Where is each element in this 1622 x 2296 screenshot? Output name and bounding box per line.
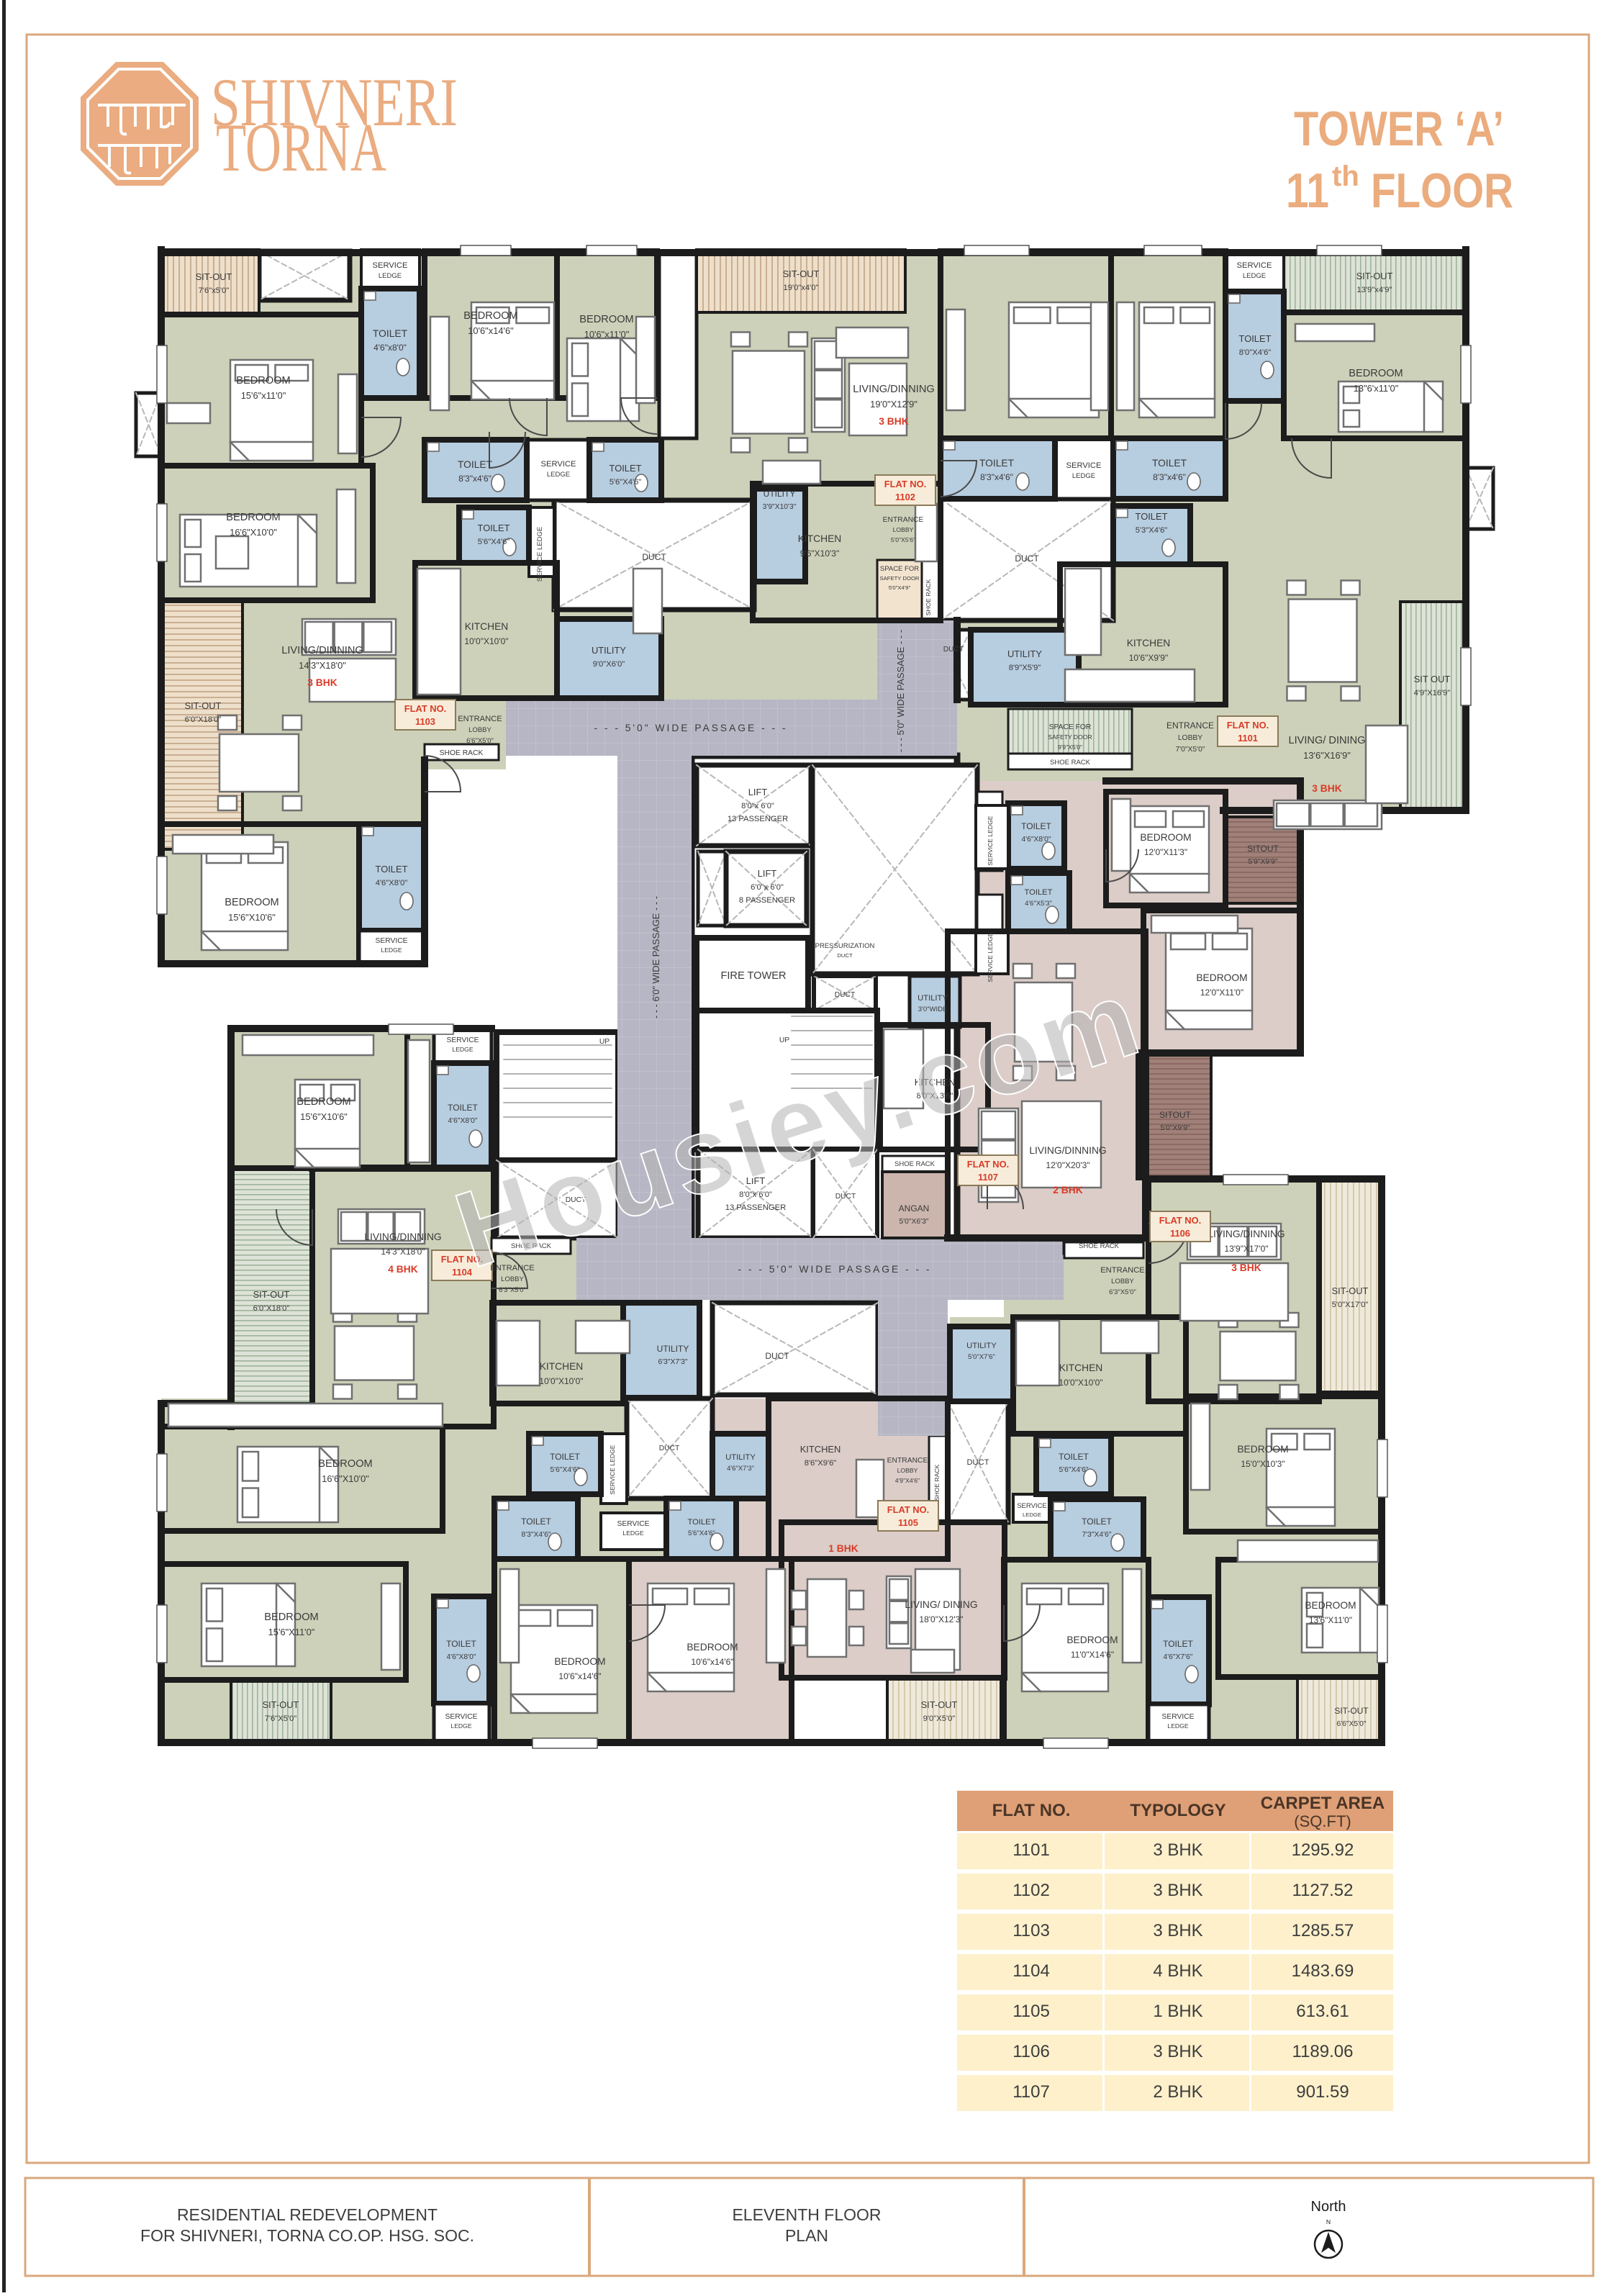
svg-text:SAFETY DOOR: SAFETY DOOR — [880, 575, 920, 582]
svg-text:8'3"x4'6": 8'3"x4'6" — [458, 474, 491, 484]
svg-text:LOBBY: LOBBY — [1111, 1278, 1134, 1285]
svg-text:15'0"X10'3": 15'0"X10'3" — [1241, 1459, 1285, 1469]
svg-text:8'3"X4'6": 8'3"X4'6" — [521, 1531, 551, 1539]
svg-text:8'9"X5'9": 8'9"X5'9" — [1009, 664, 1041, 672]
svg-text:TOILET: TOILET — [1082, 1517, 1112, 1527]
svg-text:4'6"X7'6": 4'6"X7'6" — [1163, 1653, 1192, 1661]
svg-text:7'0"X5'0": 7'0"X5'0" — [1175, 746, 1205, 754]
svg-text:1102: 1102 — [895, 492, 915, 502]
svg-text:4'6"X8'0": 4'6"X8'0" — [446, 1653, 476, 1661]
svg-text:1103: 1103 — [415, 716, 435, 727]
svg-text:CARPET AREA: CARPET AREA — [1261, 1794, 1385, 1813]
svg-text:North: North — [1311, 2199, 1346, 2215]
svg-text:ENTRANCE: ENTRANCE — [1166, 720, 1214, 731]
svg-text:5'0"X17'0": 5'0"X17'0" — [1332, 1301, 1369, 1309]
svg-text:FLAT NO.: FLAT NO. — [887, 1504, 929, 1515]
svg-text:KITCHEN: KITCHEN — [465, 621, 509, 632]
svg-text:7'3"X4'6": 7'3"X4'6" — [1082, 1531, 1111, 1539]
svg-text:SHOE RACK: SHOE RACK — [440, 749, 484, 757]
svg-text:8'0"X4'6": 8'0"X4'6" — [1239, 348, 1272, 357]
svg-text:DUCT: DUCT — [966, 1458, 989, 1467]
svg-text:BEDROOM: BEDROOM — [1066, 1635, 1118, 1645]
svg-text:5'0"X6'3": 5'0"X6'3" — [899, 1218, 928, 1226]
svg-text:UTILITY: UTILITY — [592, 645, 626, 656]
svg-text:TOILET: TOILET — [448, 1103, 478, 1113]
svg-text:LIVING/DINNING: LIVING/DINNING — [281, 645, 363, 656]
svg-text:13 PASSENGER: 13 PASSENGER — [728, 815, 788, 823]
svg-text:6'0"x 6'0": 6'0"x 6'0" — [751, 883, 784, 892]
svg-text:4'9"X16'9": 4'9"X16'9" — [1414, 689, 1451, 697]
svg-text:BEDROOM: BEDROOM — [463, 310, 517, 322]
svg-text:FLAT NO.: FLAT NO. — [967, 1159, 1009, 1170]
svg-text:5'3"X4'6": 5'3"X4'6" — [1136, 526, 1168, 535]
svg-text:LIVING/DINNING: LIVING/DINNING — [853, 384, 935, 395]
svg-text:ENTRANCE: ENTRANCE — [1100, 1266, 1145, 1275]
svg-text:KITCHEN: KITCHEN — [798, 533, 842, 544]
svg-text:8'0"x 6'0": 8'0"x 6'0" — [741, 802, 774, 810]
svg-text:SIT OUT: SIT OUT — [1414, 674, 1451, 684]
svg-text:4'6"X7'3": 4'6"X7'3" — [727, 1465, 754, 1473]
svg-text:SITOUT: SITOUT — [1159, 1110, 1191, 1120]
svg-text:SERVICE: SERVICE — [1161, 1713, 1194, 1721]
svg-text:SPACE FOR: SPACE FOR — [880, 565, 919, 573]
svg-text:ELEVENTH FLOOR: ELEVENTH FLOOR — [732, 2205, 881, 2224]
svg-text:ENTRANCE: ENTRANCE — [458, 715, 502, 723]
svg-text:FLAT NO.: FLAT NO. — [884, 479, 926, 489]
svg-text:SIT-OUT: SIT-OUT — [253, 1289, 290, 1300]
svg-text:LEDGE: LEDGE — [450, 1722, 471, 1730]
svg-text:SERVICE LEDGE: SERVICE LEDGE — [987, 815, 994, 865]
svg-text:SAFETY DOOR: SAFETY DOOR — [1048, 733, 1092, 741]
svg-text:16'6"X10'0": 16'6"X10'0" — [230, 527, 277, 538]
svg-text:19'0"x4'0": 19'0"x4'0" — [784, 284, 819, 292]
svg-text:DUCT: DUCT — [659, 1445, 680, 1452]
svg-text:LIVING/ DINING: LIVING/ DINING — [1288, 735, 1365, 746]
svg-text:3 BHK: 3 BHK — [1153, 2042, 1202, 2061]
svg-text:1127.52: 1127.52 — [1292, 1881, 1354, 1900]
svg-text:5'9"X9'9": 5'9"X9'9" — [1248, 858, 1277, 866]
svg-text:SIT-OUT: SIT-OUT — [1334, 1706, 1369, 1716]
svg-text:LEDGE: LEDGE — [1167, 1722, 1188, 1730]
svg-text:TOWER ‘A’: TOWER ‘A’ — [1294, 101, 1504, 156]
svg-text:1189.06: 1189.06 — [1292, 2042, 1354, 2061]
svg-text:SERVICE: SERVICE — [373, 261, 408, 270]
svg-text:LEDGE: LEDGE — [547, 471, 570, 479]
svg-text:LOBBY: LOBBY — [468, 726, 491, 734]
svg-text:BEDROOM: BEDROOM — [318, 1458, 372, 1470]
svg-text:DUCT: DUCT — [642, 552, 666, 562]
svg-text:SIT-OUT: SIT-OUT — [1332, 1285, 1369, 1296]
svg-text:5'6"X4'6": 5'6"X4'6" — [610, 478, 642, 487]
svg-text:TOILET: TOILET — [1163, 1639, 1193, 1649]
svg-text:LEDGE: LEDGE — [379, 272, 402, 280]
svg-text:PLAN: PLAN — [785, 2226, 828, 2245]
svg-text:SERVICE: SERVICE — [375, 937, 407, 945]
svg-text:SHOE RACK: SHOE RACK — [925, 579, 932, 615]
svg-text:4'6"X8'0": 4'6"X8'0" — [376, 879, 408, 887]
svg-text:SPACE FOR: SPACE FOR — [1049, 723, 1092, 731]
svg-text:10'0"X10'0": 10'0"X10'0" — [464, 636, 508, 646]
svg-text:TOILET: TOILET — [610, 463, 642, 474]
svg-text:DUCT: DUCT — [1015, 553, 1039, 564]
svg-text:RESIDENTIAL REDEVELOPMENT: RESIDENTIAL REDEVELOPMENT — [177, 2205, 438, 2224]
svg-text:10'6"X9'9": 10'6"X9'9" — [1129, 653, 1168, 663]
svg-text:FLAT NO.: FLAT NO. — [1159, 1215, 1201, 1226]
svg-text:15'6"X11'0": 15'6"X11'0" — [268, 1627, 315, 1637]
svg-text:1 BHK: 1 BHK — [828, 1543, 858, 1554]
svg-text:613.61: 613.61 — [1296, 2002, 1349, 2021]
svg-text:15'6"X10'6": 15'6"X10'6" — [300, 1111, 348, 1122]
svg-text:SERVICE: SERVICE — [1017, 1502, 1047, 1510]
svg-text:SHOE RACK: SHOE RACK — [894, 1160, 935, 1168]
svg-text:- - - 5'0" WIDE PASSAGE - -: - - - 5'0" WIDE PASSAGE - - - — [594, 723, 787, 733]
svg-text:8 PASSENGER: 8 PASSENGER — [739, 896, 795, 905]
svg-text:13'9"x4'9": 13'9"x4'9" — [1357, 286, 1392, 294]
svg-text:UTILITY: UTILITY — [918, 994, 948, 1003]
svg-text:9'9"X5'0": 9'9"X5'0" — [1058, 744, 1082, 751]
svg-text:SERVICE: SERVICE — [617, 1520, 649, 1528]
svg-text:15'6"X10'6": 15'6"X10'6" — [228, 912, 276, 923]
svg-text:3 BHK: 3 BHK — [1153, 1881, 1202, 1900]
svg-text:(SQ.FT): (SQ.FT) — [1294, 1812, 1351, 1830]
svg-text:8'3"x4'6": 8'3"x4'6" — [980, 472, 1013, 482]
svg-text:1295.92: 1295.92 — [1292, 1840, 1354, 1860]
svg-text:TOILET: TOILET — [376, 864, 408, 874]
svg-text:BEDROOM: BEDROOM — [1349, 368, 1403, 379]
svg-text:1104: 1104 — [452, 1267, 473, 1278]
svg-text:1107: 1107 — [978, 1172, 998, 1183]
svg-text:10'0"X10'0": 10'0"X10'0" — [1059, 1378, 1102, 1388]
svg-text:5'0"X4'9": 5'0"X4'9" — [889, 584, 911, 591]
svg-text:TOILET: TOILET — [458, 459, 493, 470]
svg-text:10'6"x14'6": 10'6"x14'6" — [691, 1657, 733, 1667]
svg-text:11: 11 — [1286, 163, 1329, 218]
svg-text:TYPOLOGY: TYPOLOGY — [1130, 1801, 1225, 1820]
svg-text:7'6"x5'0": 7'6"x5'0" — [199, 286, 230, 295]
svg-text:LEDGE: LEDGE — [1243, 272, 1266, 280]
svg-text:FLAT NO.: FLAT NO. — [992, 1801, 1071, 1820]
svg-text:SERVICE: SERVICE — [541, 460, 576, 469]
svg-text:6'6"X5'0": 6'6"X5'0" — [466, 737, 494, 745]
svg-text:10'6"x11'0": 10'6"x11'0" — [584, 329, 630, 340]
svg-text:TOILET: TOILET — [1136, 511, 1168, 522]
svg-text:2 BHK: 2 BHK — [1153, 2082, 1202, 2102]
svg-text:5'6"X4'6": 5'6"X4'6" — [688, 1529, 715, 1537]
svg-text:3'9"X10'3": 3'9"X10'3" — [763, 503, 797, 511]
svg-text:TOILET: TOILET — [550, 1452, 580, 1462]
svg-text:1 BHK: 1 BHK — [1153, 2002, 1202, 2021]
svg-text:KITCHEN: KITCHEN — [800, 1444, 841, 1455]
svg-text:BEDROOM: BEDROOM — [1237, 1444, 1288, 1455]
svg-text:LIVING/ DINING: LIVING/ DINING — [905, 1599, 977, 1610]
svg-text:LIFT: LIFT — [748, 787, 768, 797]
svg-text:13'6"X16'9": 13'6"X16'9" — [1303, 750, 1351, 761]
svg-text:3 BHK: 3 BHK — [879, 416, 908, 427]
svg-text:- - - 5'0" WIDE PASSAGE - - -: - - - 5'0" WIDE PASSAGE - - - — [895, 630, 906, 752]
svg-text:11'0"X14'6": 11'0"X14'6" — [1071, 1650, 1114, 1660]
svg-text:LIVING/DINNING: LIVING/DINNING — [1029, 1145, 1106, 1156]
svg-text:5'0"X9'9": 5'0"X9'9" — [1160, 1124, 1190, 1132]
svg-text:UTILITY: UTILITY — [657, 1344, 689, 1354]
svg-text:5'6"X4'6": 5'6"X4'6" — [550, 1466, 579, 1474]
svg-text:4'6"X5'3": 4'6"X5'3" — [1025, 900, 1052, 908]
svg-text:UP: UP — [599, 1038, 610, 1046]
svg-text:1101: 1101 — [1238, 733, 1258, 744]
svg-text:1107: 1107 — [1012, 2082, 1050, 2102]
svg-text:SIT-OUT: SIT-OUT — [196, 271, 232, 282]
svg-text:th: th — [1332, 161, 1359, 192]
svg-text:BEDROOM: BEDROOM — [1140, 832, 1191, 843]
svg-text:SERVICE LEDGE: SERVICE LEDGE — [536, 527, 544, 582]
svg-text:4'6"X8'0": 4'6"X8'0" — [1021, 836, 1051, 844]
svg-text:FIRE TOWER: FIRE TOWER — [720, 970, 786, 982]
svg-text:14'3"X18'0": 14'3"X18'0" — [299, 660, 346, 671]
svg-text:4'6"X8'0": 4'6"X8'0" — [448, 1117, 477, 1125]
svg-text:4 BHK: 4 BHK — [388, 1264, 417, 1275]
svg-text:19'0"X12'9": 19'0"X12'9" — [870, 399, 918, 410]
svg-text:SERVICE LEDGE: SERVICE LEDGE — [987, 932, 994, 982]
svg-text:BEDROOM: BEDROOM — [579, 314, 633, 325]
svg-text:TORNA: TORNA — [216, 109, 386, 186]
svg-text:3 BHK: 3 BHK — [307, 677, 337, 688]
svg-text:3 BHK: 3 BHK — [1231, 1262, 1261, 1273]
svg-text:KITCHEN: KITCHEN — [540, 1361, 584, 1372]
svg-text:BEDROOM: BEDROOM — [554, 1656, 605, 1667]
svg-text:1106: 1106 — [1012, 2042, 1050, 2061]
svg-text:SIT-OUT: SIT-OUT — [921, 1699, 958, 1710]
svg-text:TOILET: TOILET — [521, 1517, 551, 1527]
svg-text:KITCHEN: KITCHEN — [1059, 1362, 1103, 1373]
svg-text:LIVING/DINNING: LIVING/DINNING — [1208, 1229, 1285, 1239]
svg-text:SHOE RACK: SHOE RACK — [1050, 759, 1091, 767]
svg-text:UTILITY: UTILITY — [1007, 648, 1042, 659]
svg-text:16'6"X10'0": 16'6"X10'0" — [322, 1473, 369, 1484]
svg-text:LEDGE: LEDGE — [381, 946, 402, 954]
svg-text:5'6"X4'6": 5'6"X4'6" — [1059, 1466, 1088, 1474]
svg-text:4'6"x8'0": 4'6"x8'0" — [373, 343, 407, 353]
svg-text:6'3"X7'3": 6'3"X7'3" — [658, 1358, 687, 1366]
svg-text:5'0"X5'6": 5'0"X5'6" — [891, 536, 915, 543]
svg-text:9'6"X10'3": 9'6"X10'3" — [800, 548, 839, 559]
svg-text:UTILITY: UTILITY — [966, 1342, 997, 1350]
svg-text:8'6"X9'6": 8'6"X9'6" — [805, 1459, 837, 1468]
svg-text:1103: 1103 — [1012, 1921, 1050, 1940]
svg-text:LOBBY: LOBBY — [893, 526, 914, 533]
svg-text:UTILITY: UTILITY — [725, 1453, 756, 1462]
svg-text:3 BHK: 3 BHK — [1312, 783, 1341, 794]
svg-text:BEDROOM: BEDROOM — [687, 1642, 738, 1653]
svg-text:3 BHK: 3 BHK — [1153, 1921, 1202, 1940]
svg-text:LIVING/DINNING: LIVING/DINNING — [364, 1231, 441, 1242]
svg-text:5'0"X7'6": 5'0"X7'6" — [968, 1353, 995, 1361]
svg-text:6'6"X5'0": 6'6"X5'0" — [1336, 1720, 1366, 1728]
svg-text:KITCHEN: KITCHEN — [1127, 638, 1171, 648]
svg-text:LEDGE: LEDGE — [452, 1046, 473, 1053]
svg-text:13'9"X17'0": 13'9"X17'0" — [1224, 1244, 1268, 1254]
svg-text:12'0"X11'0": 12'0"X11'0" — [1200, 987, 1243, 998]
svg-text:FOR SHIVNERI, TORNA CO.OP. HSG: FOR SHIVNERI, TORNA CO.OP. HSG. SOC. — [140, 2226, 474, 2245]
svg-text:14'3"X18'0": 14'3"X18'0" — [381, 1247, 425, 1257]
svg-text:6'0"X18'0": 6'0"X18'0" — [185, 715, 222, 724]
svg-text:- - - 6'0" WIDE PASSAGE - - -: - - - 6'0" WIDE PASSAGE - - - — [651, 896, 661, 1018]
svg-text:TOILET: TOILET — [1021, 821, 1051, 831]
svg-text:BEDROOM: BEDROOM — [1305, 1600, 1356, 1611]
svg-text:TOILET: TOILET — [373, 328, 408, 339]
svg-text:SERVICE: SERVICE — [1066, 461, 1102, 470]
svg-text:6'0"X18'0": 6'0"X18'0" — [253, 1304, 290, 1313]
svg-text:7'6"X5'0": 7'6"X5'0" — [265, 1714, 297, 1723]
svg-text:N: N — [1326, 2218, 1331, 2225]
svg-text:2 BHK: 2 BHK — [1053, 1185, 1082, 1196]
svg-text:TOILET: TOILET — [979, 458, 1015, 469]
svg-text:1106: 1106 — [1170, 1228, 1190, 1239]
svg-text:TOILET: TOILET — [688, 1518, 716, 1527]
svg-text:1102: 1102 — [1012, 1881, 1050, 1900]
svg-text:TOILET: TOILET — [1239, 333, 1272, 344]
svg-text:SERVICE: SERVICE — [445, 1713, 477, 1721]
svg-text:9'0"X5'0": 9'0"X5'0" — [923, 1714, 956, 1723]
svg-text:SHOE RACK: SHOE RACK — [1079, 1242, 1120, 1250]
svg-text:1101: 1101 — [1012, 1840, 1050, 1860]
svg-text:TOILET: TOILET — [478, 523, 510, 533]
svg-text:1105: 1105 — [898, 1517, 918, 1528]
svg-text:SIT-OUT: SIT-OUT — [263, 1699, 299, 1710]
svg-text:15'6"x11'0": 15'6"x11'0" — [241, 390, 286, 401]
svg-text:DUCT: DUCT — [943, 646, 964, 654]
svg-text:FLAT NO.: FLAT NO. — [404, 703, 446, 714]
svg-text:ENTRANCE: ENTRANCE — [887, 1457, 928, 1465]
svg-text:9'0"X6'0": 9'0"X6'0" — [593, 660, 625, 669]
svg-text:1285.57: 1285.57 — [1292, 1921, 1354, 1940]
svg-text:SIT-OUT: SIT-OUT — [1356, 271, 1393, 281]
svg-text:1483.69: 1483.69 — [1292, 1961, 1354, 1981]
svg-text:LEDGE: LEDGE — [1072, 472, 1095, 480]
svg-text:- - - 5'0" WIDE PASSAGE - -: - - - 5'0" WIDE PASSAGE - - - — [738, 1264, 931, 1275]
svg-text:5'6"X4'6": 5'6"X4'6" — [478, 538, 510, 546]
svg-text:FLAT NO.: FLAT NO. — [1227, 720, 1269, 731]
svg-text:3 BHK: 3 BHK — [1153, 1840, 1202, 1860]
svg-text:LOBBY: LOBBY — [897, 1467, 918, 1474]
svg-text:BEDROOM: BEDROOM — [1196, 972, 1247, 983]
svg-text:1104: 1104 — [1012, 1961, 1050, 1981]
svg-text:BEDROOM: BEDROOM — [226, 512, 280, 523]
svg-text:SERVICE LEDGE: SERVICE LEDGE — [609, 1445, 616, 1494]
svg-text:UTILITY: UTILITY — [764, 489, 796, 499]
svg-text:13'6"X11'0": 13'6"X11'0" — [1309, 1615, 1352, 1625]
svg-text:DUCT: DUCT — [837, 952, 853, 959]
svg-text:10'6"x14'6": 10'6"x14'6" — [468, 325, 514, 336]
svg-text:18'0"X12'3": 18'0"X12'3" — [919, 1614, 963, 1624]
svg-text:DUCT: DUCT — [835, 991, 856, 999]
svg-text:LEDGE: LEDGE — [1023, 1511, 1041, 1518]
svg-text:SIT-OUT: SIT-OUT — [185, 700, 222, 711]
svg-text:SIT-OUT: SIT-OUT — [783, 268, 820, 279]
svg-text:TOILET: TOILET — [1152, 458, 1187, 469]
svg-text:UP: UP — [779, 1036, 789, 1044]
svg-text:SITOUT: SITOUT — [1247, 844, 1279, 854]
svg-text:6'3"X5'0": 6'3"X5'0" — [499, 1286, 526, 1294]
svg-text:LEDGE: LEDGE — [622, 1529, 643, 1537]
svg-text:SERVICE: SERVICE — [1237, 261, 1272, 270]
svg-text:13"6'x11'0": 13"6'x11'0" — [1354, 383, 1399, 394]
svg-text:TOILET: TOILET — [1059, 1452, 1089, 1462]
svg-text:SERVICE: SERVICE — [446, 1036, 479, 1044]
svg-text:10'0"X10'0": 10'0"X10'0" — [539, 1376, 583, 1386]
svg-text:1105: 1105 — [1012, 2002, 1050, 2021]
svg-text:TOILET: TOILET — [1025, 888, 1053, 897]
svg-text:BEDROOM: BEDROOM — [264, 1612, 318, 1623]
svg-text:PRESSURIZATION: PRESSURIZATION — [815, 942, 875, 950]
svg-text:6'3"X5'0": 6'3"X5'0" — [1109, 1288, 1136, 1296]
svg-text:12'0"X20'3": 12'0"X20'3" — [1046, 1160, 1089, 1170]
svg-text:ENTRANCE: ENTRANCE — [883, 516, 924, 524]
svg-text:BEDROOM: BEDROOM — [296, 1096, 350, 1108]
svg-text:4'9"X4'6": 4'9"X4'6" — [895, 1477, 920, 1484]
svg-text:BEDROOM: BEDROOM — [225, 897, 278, 908]
svg-text:12'0"X11'3": 12'0"X11'3" — [1144, 847, 1187, 857]
svg-text:BEDROOM: BEDROOM — [236, 375, 290, 387]
svg-text:DUCT: DUCT — [765, 1351, 789, 1361]
svg-text:LIFT: LIFT — [758, 868, 777, 879]
svg-text:4 BHK: 4 BHK — [1153, 1961, 1202, 1981]
svg-text:ANGAN: ANGAN — [899, 1203, 930, 1213]
svg-text:10'6"x14'6": 10'6"x14'6" — [558, 1671, 601, 1681]
svg-text:SHOE RACK: SHOE RACK — [933, 1464, 941, 1501]
svg-text:DUCT: DUCT — [835, 1193, 856, 1201]
svg-text:8'3"x4'6": 8'3"x4'6" — [1153, 472, 1186, 482]
svg-text:FLOOR: FLOOR — [1371, 163, 1513, 218]
svg-text:901.59: 901.59 — [1296, 2082, 1349, 2102]
svg-text:LOBBY: LOBBY — [1178, 734, 1202, 742]
svg-text:TOILET: TOILET — [446, 1639, 476, 1649]
